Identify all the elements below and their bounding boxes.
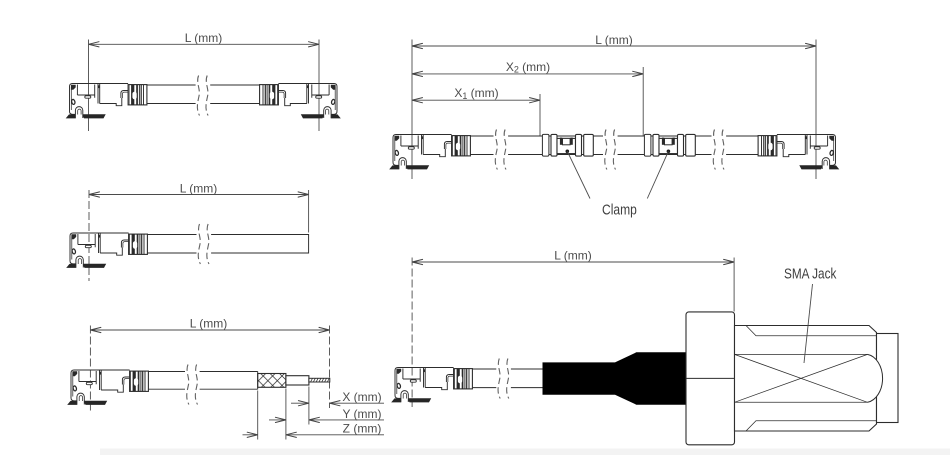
svg-text:X (mm): X (mm) [342,390,381,404]
svg-text:X1 (mm): X1 (mm) [454,86,498,101]
svg-text:Clamp: Clamp [602,201,637,218]
svg-text:L (mm): L (mm) [554,248,592,262]
svg-text:SMA Jack: SMA Jack [784,266,837,283]
svg-text:L (mm): L (mm) [190,317,228,331]
svg-text:Y (mm): Y (mm) [342,407,381,421]
svg-text:Z (mm): Z (mm) [343,422,382,436]
svg-text:L (mm): L (mm) [595,33,633,47]
svg-text:L (mm): L (mm) [180,181,218,195]
svg-text:L (mm): L (mm) [185,31,223,45]
svg-text:X2 (mm): X2 (mm) [506,60,550,75]
